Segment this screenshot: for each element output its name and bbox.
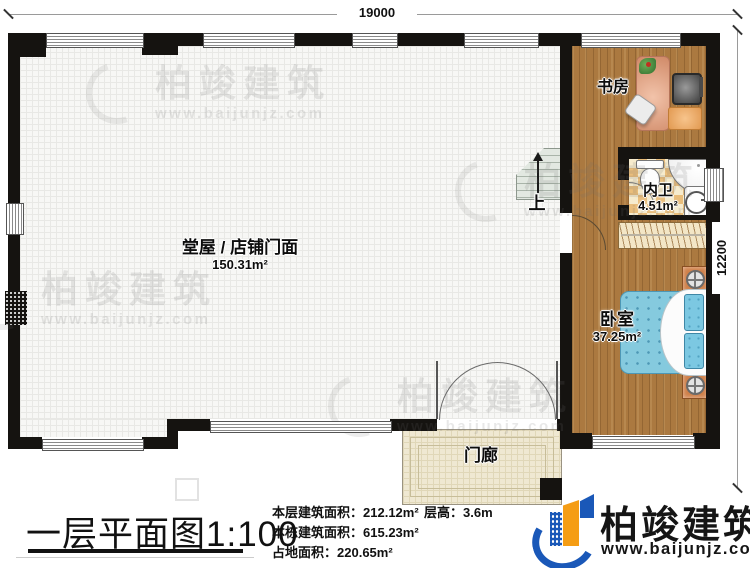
room-area: 37.25m² bbox=[578, 330, 656, 345]
stat-label: 占地面积： bbox=[272, 545, 337, 560]
dimension-top-value: 19000 bbox=[337, 5, 417, 20]
computer-monitor bbox=[672, 73, 702, 105]
monitor-stand bbox=[699, 77, 703, 97]
wall-segment bbox=[560, 33, 572, 213]
wall-segment bbox=[396, 33, 464, 46]
stat-floor-height: 层高：3.6m bbox=[424, 503, 493, 523]
logo-building-orange bbox=[563, 500, 579, 546]
window bbox=[203, 33, 295, 48]
wall-segment bbox=[706, 33, 720, 168]
stat-label: 本层建筑面积： bbox=[272, 505, 363, 520]
stat-land-area: 占地面积：220.65m² bbox=[272, 543, 419, 563]
lamp-icon bbox=[686, 376, 705, 395]
wall-segment bbox=[618, 147, 706, 159]
hall-floor-extension bbox=[20, 419, 167, 437]
stat-value: 220.65m² bbox=[337, 545, 393, 560]
nightstand-bottom bbox=[682, 372, 708, 399]
logo-building-blue-right bbox=[580, 494, 594, 518]
wardrobe-rail bbox=[621, 234, 705, 236]
wall-segment bbox=[142, 33, 203, 46]
study-side-table bbox=[668, 107, 702, 130]
logo-building-blue-left bbox=[550, 512, 562, 546]
window bbox=[46, 33, 144, 48]
wall-segment bbox=[167, 419, 210, 431]
wardrobe bbox=[618, 222, 708, 249]
room-name: 内卫 bbox=[622, 182, 694, 199]
dimension-right-value: 12200 bbox=[712, 222, 732, 294]
hall-label: 堂屋 / 店铺门面 150.31m² bbox=[150, 238, 330, 272]
wall-segment bbox=[618, 159, 629, 180]
window bbox=[592, 436, 695, 449]
wall-segment bbox=[8, 33, 20, 203]
porch-label: 门廊 bbox=[402, 446, 560, 466]
desk-plant-flower bbox=[646, 62, 651, 67]
stairs-direction: 上 bbox=[522, 194, 552, 214]
wall-segment bbox=[390, 419, 437, 431]
room-area: 4.51m² bbox=[622, 199, 694, 213]
stat-label: 层高： bbox=[424, 505, 463, 520]
bed-pillow-top bbox=[684, 294, 704, 331]
stat-building-area: 本栋建筑面积：615.23m² bbox=[272, 523, 419, 543]
area-stats: 本层建筑面积：212.12m² 本栋建筑面积：615.23m² 占地面积：220… bbox=[272, 503, 419, 563]
wall-segment bbox=[618, 215, 706, 220]
stairs-up-label: 上 bbox=[522, 194, 552, 214]
stat-value: 615.23m² bbox=[363, 525, 419, 540]
brand-logo-icon bbox=[532, 492, 594, 564]
stat-value: 3.6m bbox=[463, 505, 493, 520]
stat-label: 本栋建筑面积： bbox=[272, 525, 363, 540]
window bbox=[464, 33, 539, 48]
title-underline bbox=[28, 549, 243, 553]
window bbox=[704, 168, 724, 202]
wall-segment bbox=[293, 33, 352, 46]
wall-segment bbox=[560, 253, 572, 449]
room-name: 卧室 bbox=[578, 310, 656, 330]
wall-segment bbox=[537, 33, 581, 46]
room-area: 150.31m² bbox=[150, 258, 330, 273]
room-name: 书房 bbox=[588, 79, 638, 97]
entrance-door-leaf-left bbox=[436, 361, 438, 419]
wall-segment bbox=[8, 437, 42, 449]
stairs-arrow-head bbox=[533, 152, 543, 161]
lamp-icon bbox=[686, 270, 705, 289]
window bbox=[6, 203, 24, 235]
dimension-line-right bbox=[737, 30, 738, 489]
stat-floor-area: 本层建筑面积：212.12m² bbox=[272, 503, 419, 523]
stat-value: 212.12m² bbox=[363, 505, 419, 520]
brand-website: www.baijunjz.com bbox=[601, 540, 750, 559]
wall-segment bbox=[8, 325, 20, 449]
floor-plan-page: 柏竣建筑 www.baijunjz.com 柏竣建筑 www.baijunjz.… bbox=[0, 0, 750, 568]
wall-segment bbox=[8, 233, 20, 291]
hall-floor bbox=[20, 46, 560, 419]
title-underline-light bbox=[16, 557, 254, 558]
column-legend-square bbox=[175, 478, 199, 501]
wall-segment bbox=[142, 46, 178, 55]
window bbox=[42, 439, 144, 451]
bedroom-label: 卧室 37.25m² bbox=[578, 310, 656, 344]
bed-pillow-bottom bbox=[684, 333, 704, 369]
entrance-door-leaf-right bbox=[556, 361, 558, 419]
window bbox=[581, 33, 681, 48]
study-label: 书房 bbox=[588, 79, 638, 97]
room-name: 门廊 bbox=[402, 446, 560, 466]
stairs-arrow-shaft bbox=[537, 160, 539, 193]
shower-drain-dot bbox=[697, 164, 700, 167]
window bbox=[210, 421, 392, 433]
bathroom-label: 内卫 4.51m² bbox=[622, 182, 694, 214]
window bbox=[352, 33, 398, 48]
side-door-block bbox=[5, 291, 27, 325]
room-name: 堂屋 / 店铺门面 bbox=[150, 238, 330, 258]
